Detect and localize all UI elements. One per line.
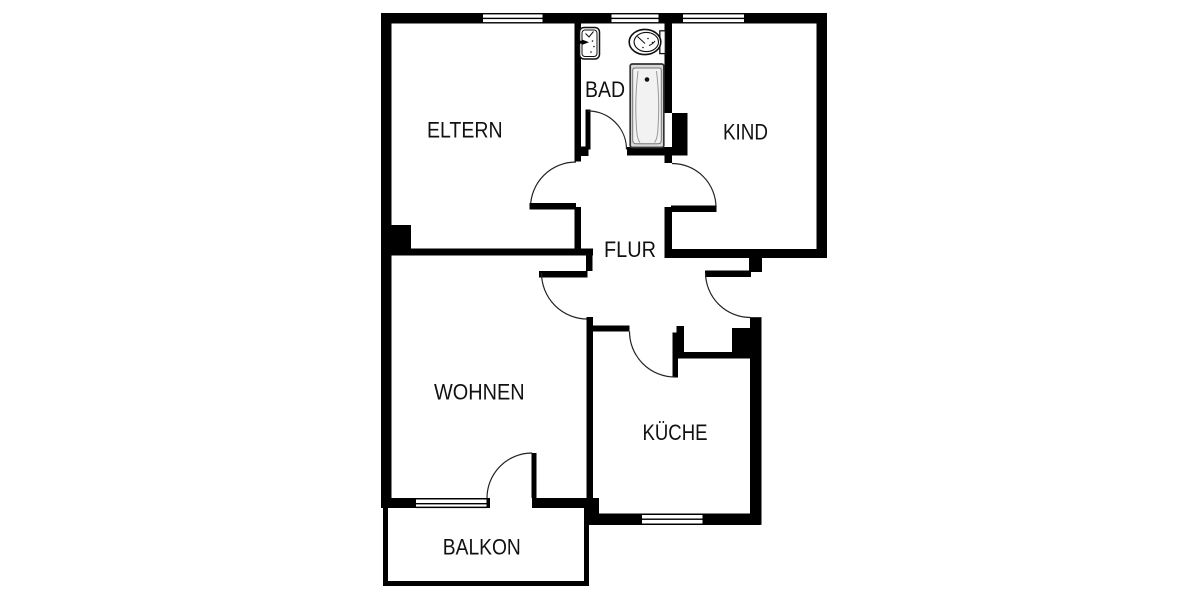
- svg-text:KÜCHE: KÜCHE: [643, 420, 708, 445]
- svg-text:BALKON: BALKON: [443, 534, 521, 559]
- svg-text:BAD: BAD: [585, 77, 625, 102]
- svg-text:FLUR: FLUR: [604, 237, 656, 262]
- svg-text:KIND: KIND: [723, 119, 768, 144]
- svg-text:WOHNEN: WOHNEN: [434, 379, 525, 404]
- svg-text:ELTERN: ELTERN: [427, 117, 503, 142]
